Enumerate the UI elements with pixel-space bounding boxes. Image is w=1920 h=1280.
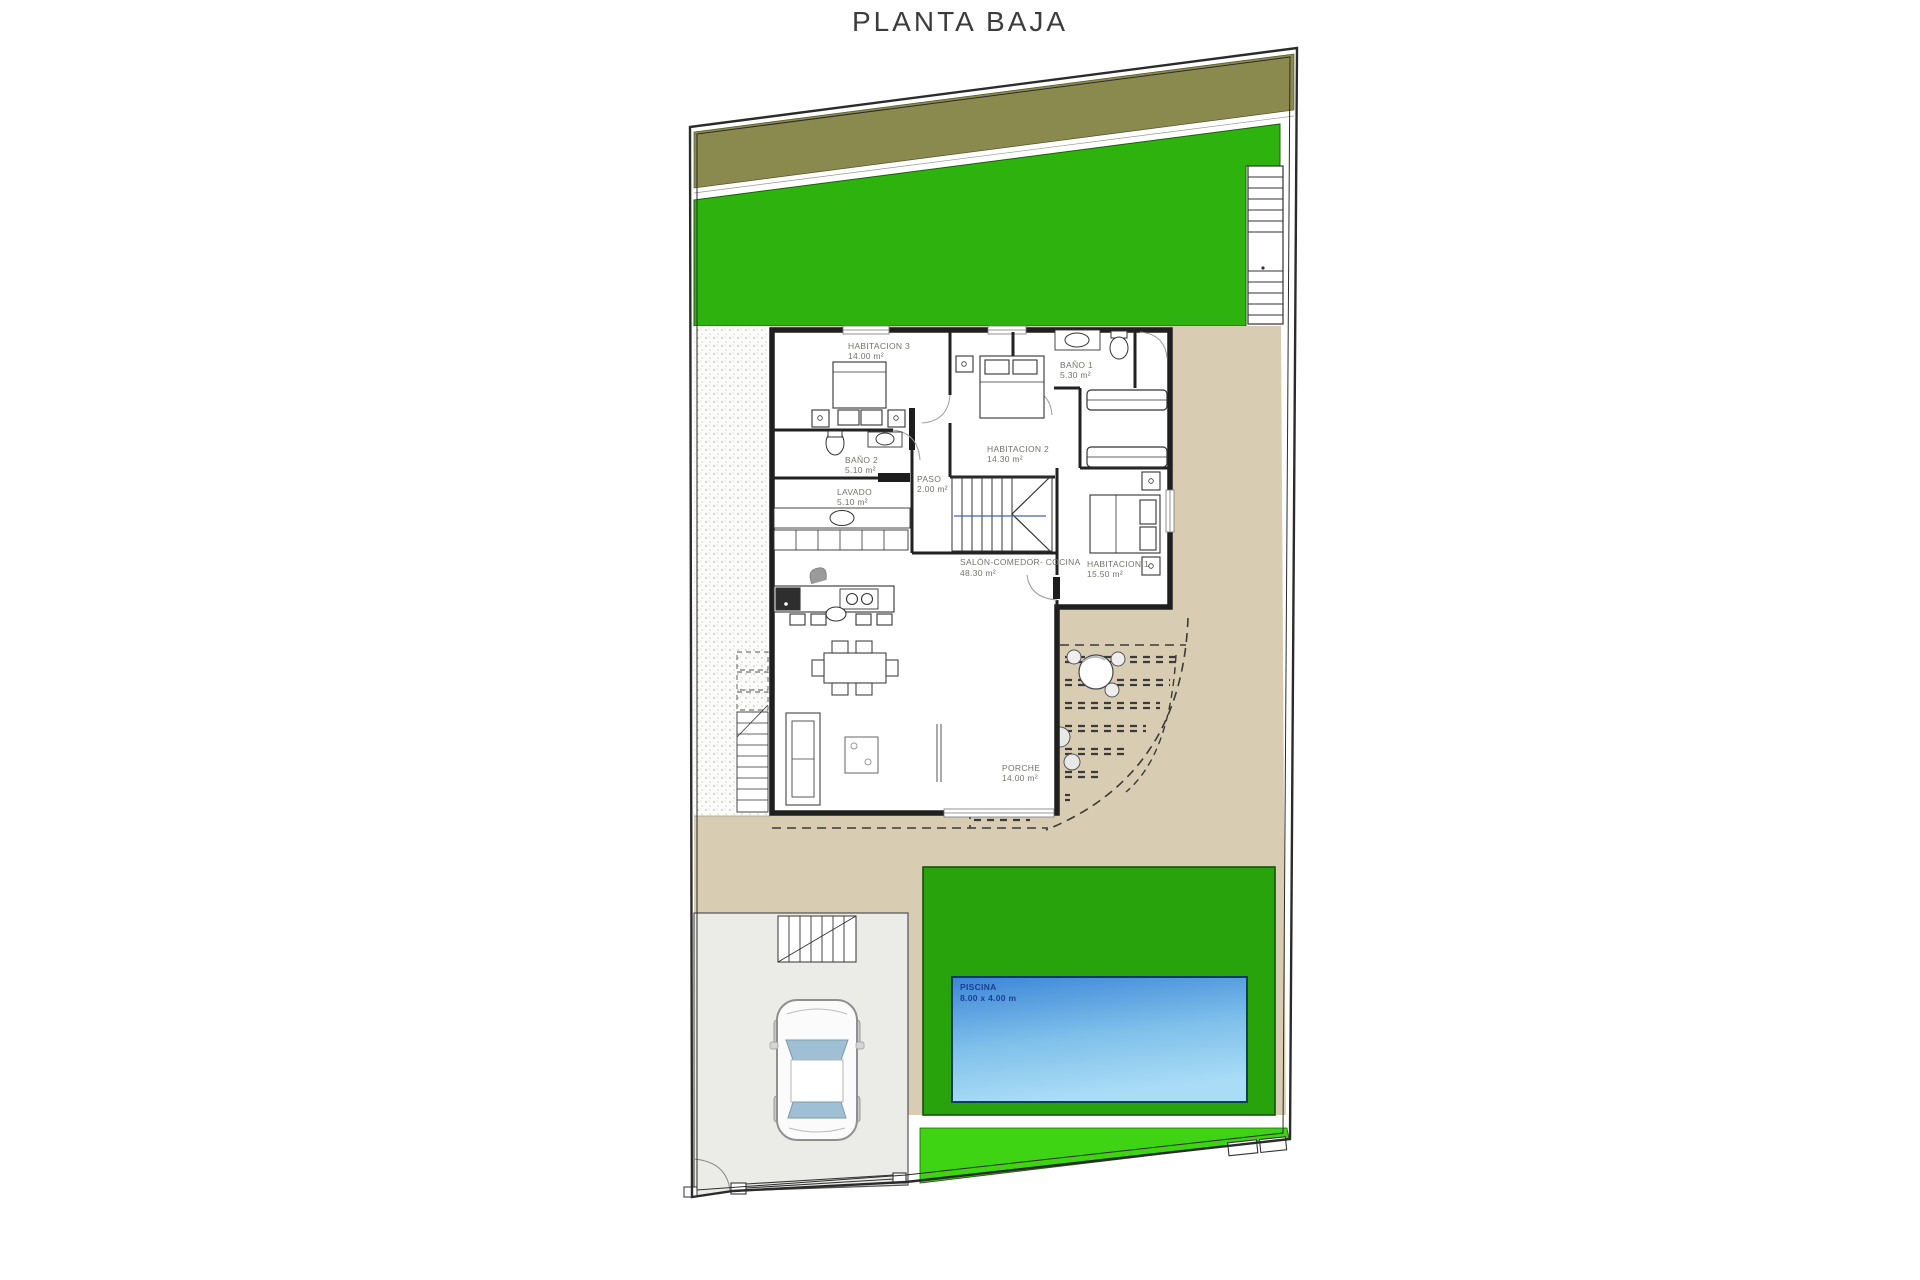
pool: PISCINA 8.00 x 4.00 m [952,977,1247,1102]
car-roof [791,1060,843,1102]
room-area-salon: 48.30 m² [960,568,996,578]
room-label-habitacion1: HABITACION 1 [1087,559,1149,569]
white-gap [908,1115,1288,1129]
room-area-porche: 14.00 m² [1002,773,1038,783]
coffee-table [845,737,878,773]
room-label-porche: PORCHE [1002,763,1040,773]
room-label-paso: PASO [917,474,941,484]
car-rear-window [788,1102,846,1118]
room-area-habitacion1: 15.50 m² [1087,569,1123,579]
room-label-habitacion2: HABITACION 2 [987,444,1049,454]
cabinet-row [774,530,908,550]
room-label-lavado: LAVADO [837,487,872,497]
floor-plan-page: PLANTA BAJA [0,0,1920,1280]
room-area-bano2: 5.10 m² [845,465,876,475]
room-label-bano1: BAÑO 1 [1060,360,1093,370]
floor-plan-drawing: PISCINA 8.00 x 4.00 m [0,0,1920,1280]
car [770,1000,864,1140]
pool-label: PISCINA [960,982,997,992]
sofa [786,713,820,805]
garden-stairs [1248,166,1283,324]
car-windshield [786,1040,848,1060]
room-area-habitacion3: 14.00 m² [848,351,884,361]
driveway-stairs [778,916,856,962]
room-label-salon: SALÓN-COMEDOR- COCINA [960,557,1081,567]
room-label-habitacion3: HABITACION 3 [848,341,910,351]
room-label-bano2: BAÑO 2 [845,455,878,465]
room-area-bano1: 5.30 m² [1060,370,1091,380]
pool-dimensions: 8.00 x 4.00 m [960,993,1016,1003]
room-area-paso: 2.00 m² [917,484,948,494]
room-area-lavado: 5.10 m² [837,497,868,507]
room-area-habitacion2: 14.30 m² [987,454,1023,464]
